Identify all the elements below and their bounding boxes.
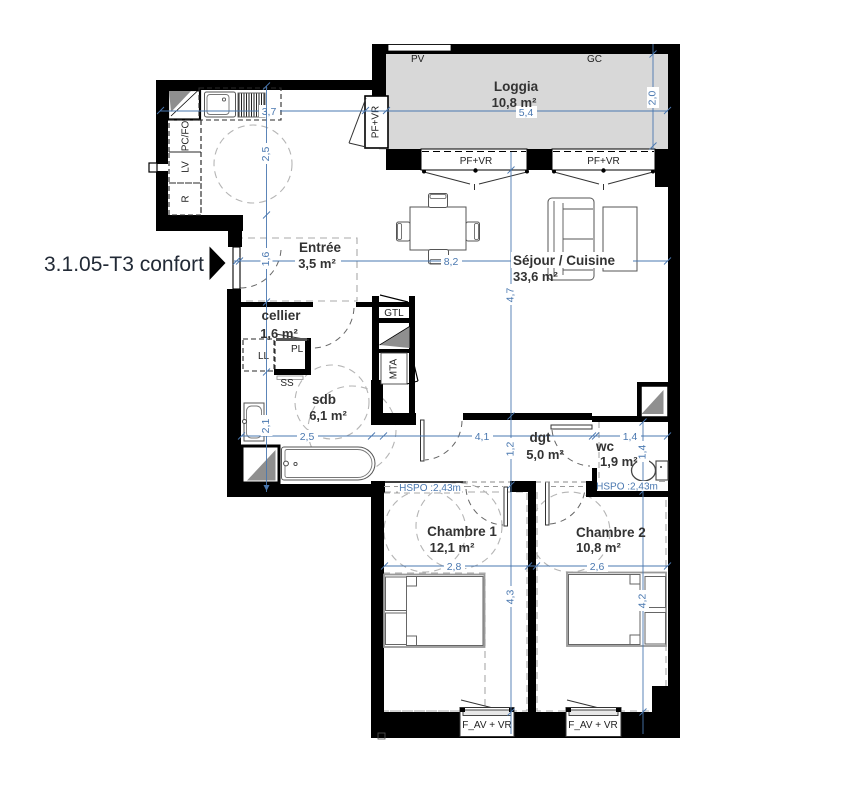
svg-text:1,6: 1,6 bbox=[260, 252, 272, 267]
svg-text:1,6 m²: 1,6 m² bbox=[260, 326, 298, 341]
svg-text:F_AV + VR: F_AV + VR bbox=[462, 720, 512, 731]
svg-text:sdb: sdb bbox=[312, 392, 336, 407]
svg-text:HSPO :2,43m: HSPO :2,43m bbox=[596, 482, 658, 493]
svg-text:12,1 m²: 12,1 m² bbox=[430, 540, 475, 555]
svg-text:Chambre 2: Chambre 2 bbox=[576, 525, 646, 540]
svg-text:GC: GC bbox=[587, 54, 602, 65]
svg-text:Loggia: Loggia bbox=[494, 79, 539, 94]
svg-text:cellier: cellier bbox=[261, 308, 301, 323]
svg-text:2,5: 2,5 bbox=[260, 147, 272, 162]
svg-text:Entrée: Entrée bbox=[299, 240, 342, 255]
svg-text:F_AV + VR: F_AV + VR bbox=[568, 720, 618, 731]
svg-text:1,4: 1,4 bbox=[623, 431, 638, 443]
svg-text:GTL: GTL bbox=[384, 308, 404, 319]
svg-text:4,3: 4,3 bbox=[504, 590, 516, 605]
svg-text:33,6 m²: 33,6 m² bbox=[513, 269, 558, 284]
svg-text:6,1 m²: 6,1 m² bbox=[309, 408, 347, 423]
svg-text:8,2: 8,2 bbox=[444, 256, 459, 268]
svg-text:PF+VR: PF+VR bbox=[460, 156, 493, 167]
svg-text:3.1.05-T3 confort: 3.1.05-T3 confort bbox=[44, 253, 204, 276]
svg-text:LL: LL bbox=[258, 351, 270, 362]
svg-text:10,8 m²: 10,8 m² bbox=[492, 95, 537, 110]
svg-text:MTA: MTA bbox=[389, 358, 400, 379]
svg-text:PV: PV bbox=[411, 54, 425, 65]
svg-text:PF+VR: PF+VR bbox=[587, 156, 620, 167]
svg-text:3,5 m²: 3,5 m² bbox=[298, 256, 336, 271]
svg-text:4,1: 4,1 bbox=[475, 431, 490, 443]
svg-text:PL: PL bbox=[291, 344, 304, 355]
svg-text:1,2: 1,2 bbox=[504, 442, 516, 457]
svg-text:4,2: 4,2 bbox=[636, 594, 648, 609]
svg-text:5,0 m²: 5,0 m² bbox=[526, 447, 564, 462]
svg-text:Chambre 1: Chambre 1 bbox=[427, 524, 497, 539]
svg-text:1,4: 1,4 bbox=[636, 445, 648, 460]
svg-text:2,6: 2,6 bbox=[590, 561, 605, 573]
svg-text:3,7: 3,7 bbox=[262, 106, 277, 118]
svg-text:2,1: 2,1 bbox=[260, 419, 272, 434]
svg-text:wc: wc bbox=[595, 439, 615, 454]
svg-text:dgt: dgt bbox=[530, 430, 551, 445]
svg-text:HSPO :2,43m: HSPO :2,43m bbox=[399, 483, 461, 494]
svg-text:SS: SS bbox=[280, 378, 294, 389]
svg-text:2,5: 2,5 bbox=[300, 431, 315, 443]
svg-text:Séjour / Cuisine: Séjour / Cuisine bbox=[513, 253, 616, 268]
svg-text:PC/FO: PC/FO bbox=[181, 121, 192, 152]
svg-text:LV: LV bbox=[181, 161, 192, 173]
svg-text:2,8: 2,8 bbox=[447, 561, 462, 573]
svg-text:4,7: 4,7 bbox=[504, 288, 516, 303]
svg-text:10,8 m²: 10,8 m² bbox=[576, 540, 621, 555]
svg-text:2,0: 2,0 bbox=[646, 91, 658, 106]
svg-text:1,9 m²: 1,9 m² bbox=[600, 454, 638, 469]
svg-text:R: R bbox=[181, 195, 192, 202]
